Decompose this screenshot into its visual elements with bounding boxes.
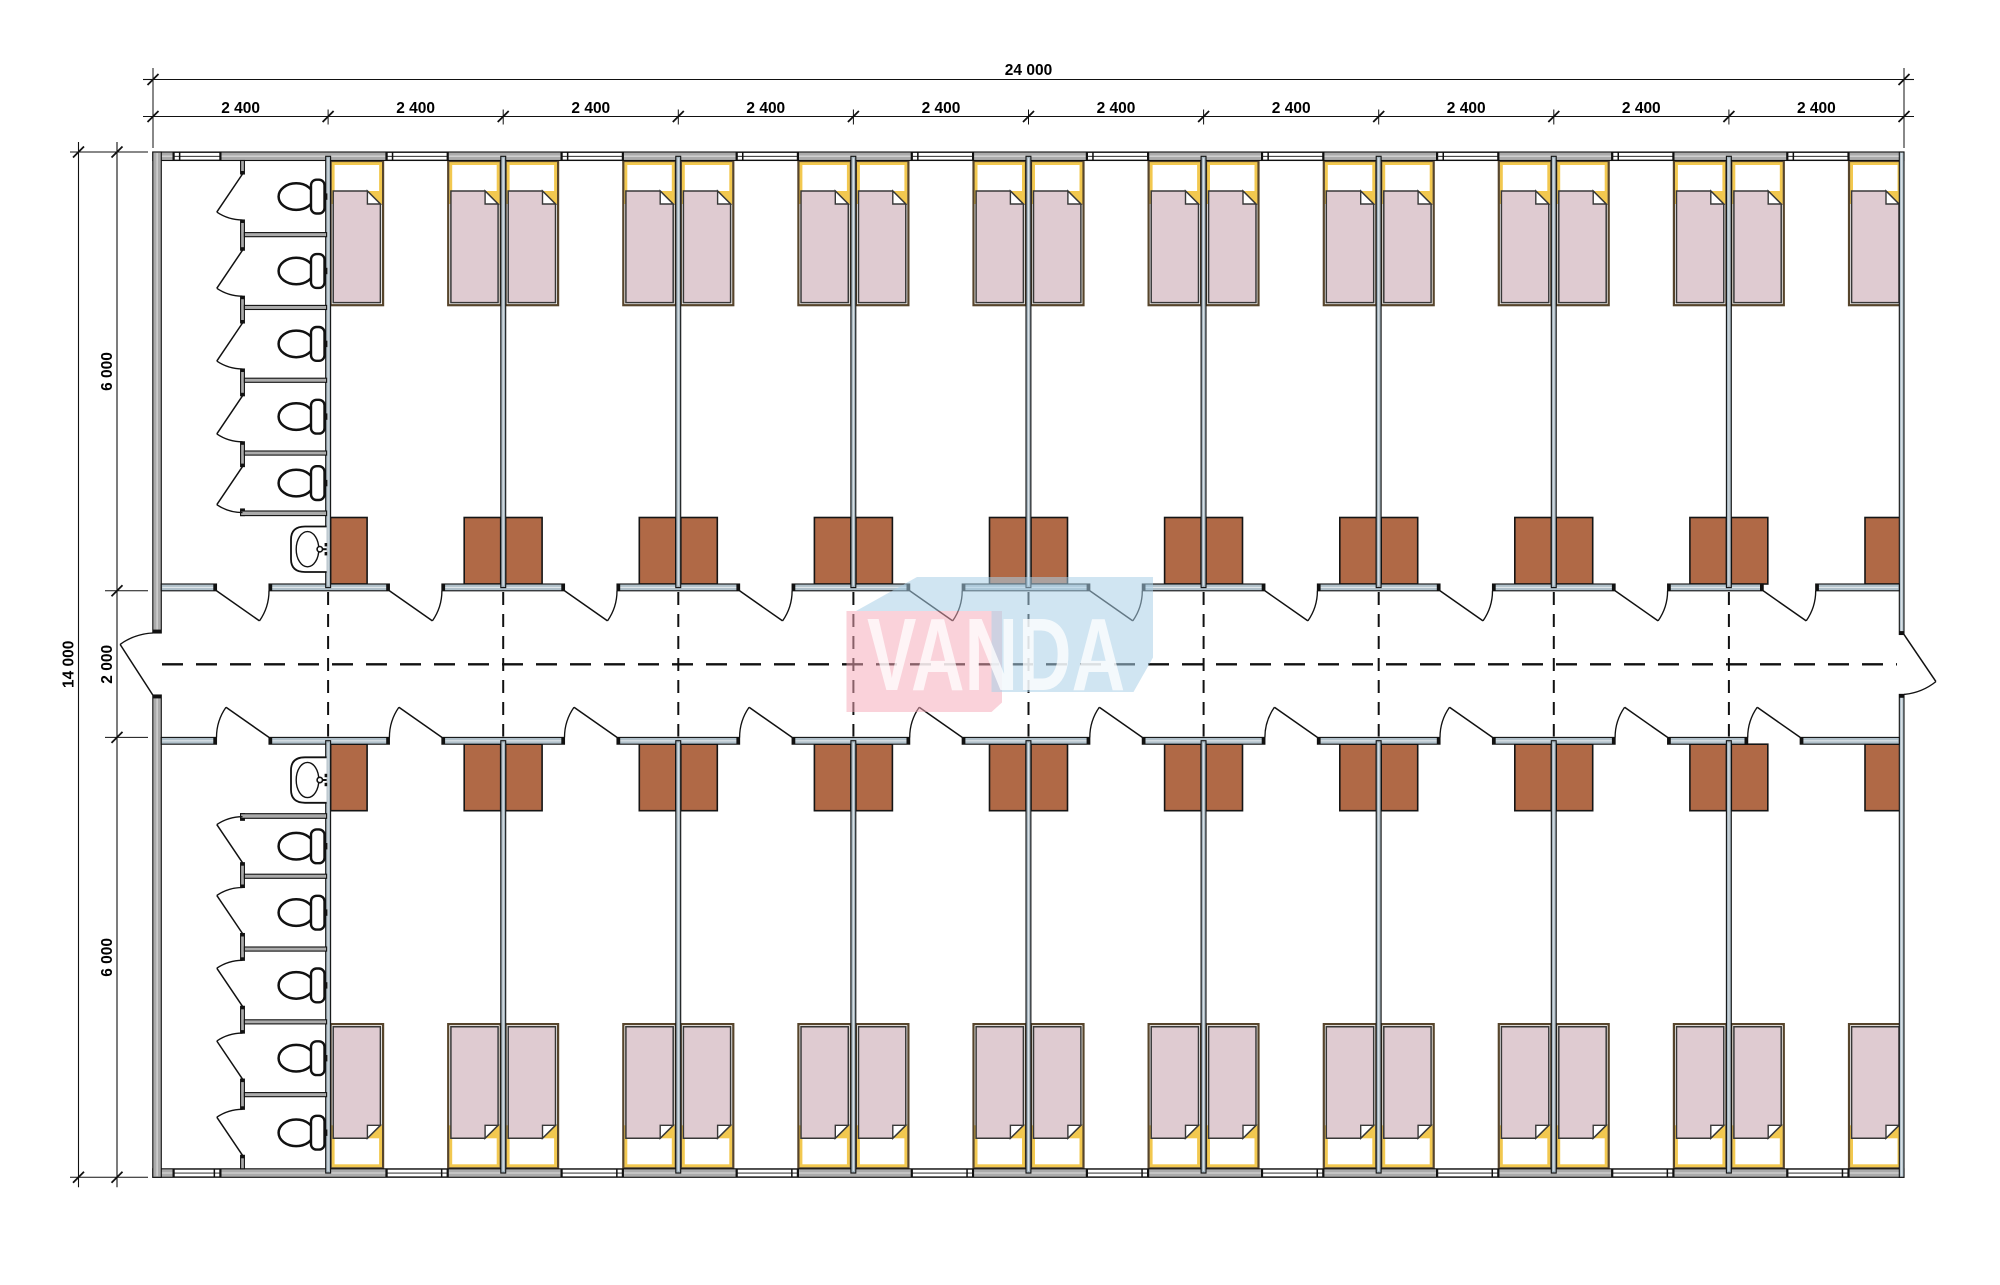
svg-text:14 000: 14 000 xyxy=(61,641,78,688)
svg-text:2 400: 2 400 xyxy=(1097,100,1136,117)
svg-text:2 000: 2 000 xyxy=(99,645,116,684)
svg-text:2 400: 2 400 xyxy=(1622,100,1661,117)
svg-text:2 400: 2 400 xyxy=(1272,100,1311,117)
svg-text:2 400: 2 400 xyxy=(922,100,961,117)
svg-text:2 400: 2 400 xyxy=(1797,100,1836,117)
svg-text:6 000: 6 000 xyxy=(99,352,116,391)
svg-text:2 400: 2 400 xyxy=(396,100,435,117)
svg-text:24 000: 24 000 xyxy=(1005,62,1052,79)
svg-text:2 400: 2 400 xyxy=(571,100,610,117)
svg-text:6 000: 6 000 xyxy=(99,938,116,977)
svg-text:2 400: 2 400 xyxy=(746,100,785,117)
svg-text:2 400: 2 400 xyxy=(1447,100,1486,117)
svg-text:2 400: 2 400 xyxy=(221,100,260,117)
svg-text:VANDA: VANDA xyxy=(867,598,1125,713)
